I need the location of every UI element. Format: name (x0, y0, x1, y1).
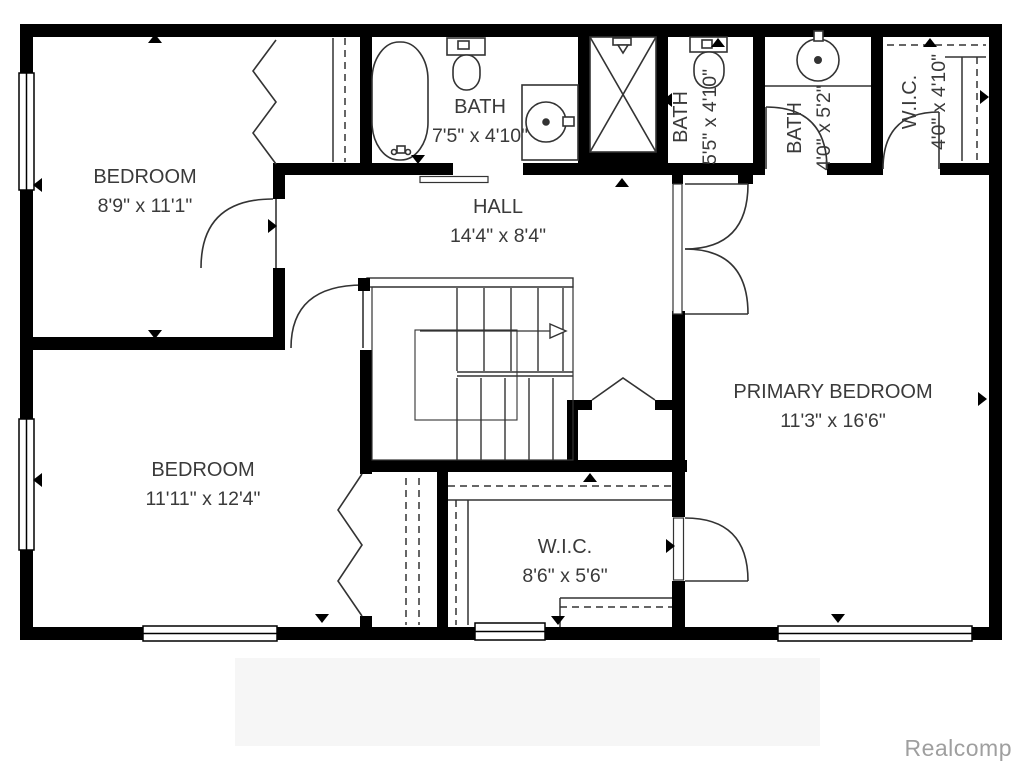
window-icon (475, 623, 545, 640)
door-swing-icon (674, 518, 749, 581)
bifold-door-icon (338, 474, 362, 616)
window-icon (778, 626, 972, 641)
window-icon (143, 626, 277, 641)
accordion-door-icon (592, 378, 655, 400)
floor-plan-drawing (0, 0, 1024, 768)
door-swing-icon (291, 285, 363, 348)
sink-icon (522, 85, 578, 160)
staircase-icon (358, 278, 573, 460)
window-icon (19, 73, 34, 190)
windows (19, 73, 972, 641)
double-door-icon (673, 184, 748, 314)
shower-icon (590, 37, 656, 152)
door-swing-icon (766, 107, 827, 169)
realcomp-watermark: Realcomp (904, 735, 1012, 762)
toilet-icon (447, 38, 485, 90)
sink-icon (765, 31, 871, 86)
threshold (420, 177, 488, 183)
floor-plan-page: BEDROOM 8'9" x 11'1" BATH 7'5" x 4'10" H… (0, 0, 1024, 768)
bathtub-icon (372, 42, 428, 160)
window-icon (19, 419, 34, 550)
door-swing-icon (201, 199, 276, 268)
bifold-door-icon (253, 40, 276, 164)
fixtures (372, 31, 871, 160)
door-swing-icon (883, 112, 939, 169)
